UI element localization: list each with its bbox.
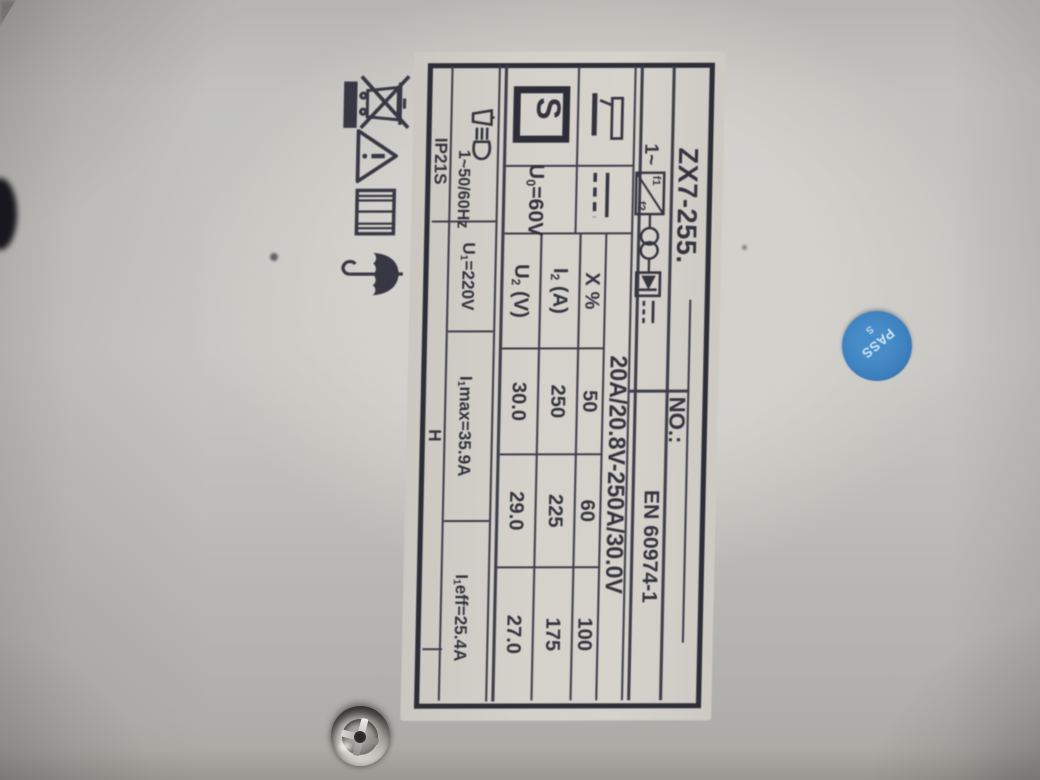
svg-text:f2: f2 [635,201,647,211]
svg-text:1~: 1~ [640,143,663,165]
svg-text:f1: f1 [650,176,662,186]
